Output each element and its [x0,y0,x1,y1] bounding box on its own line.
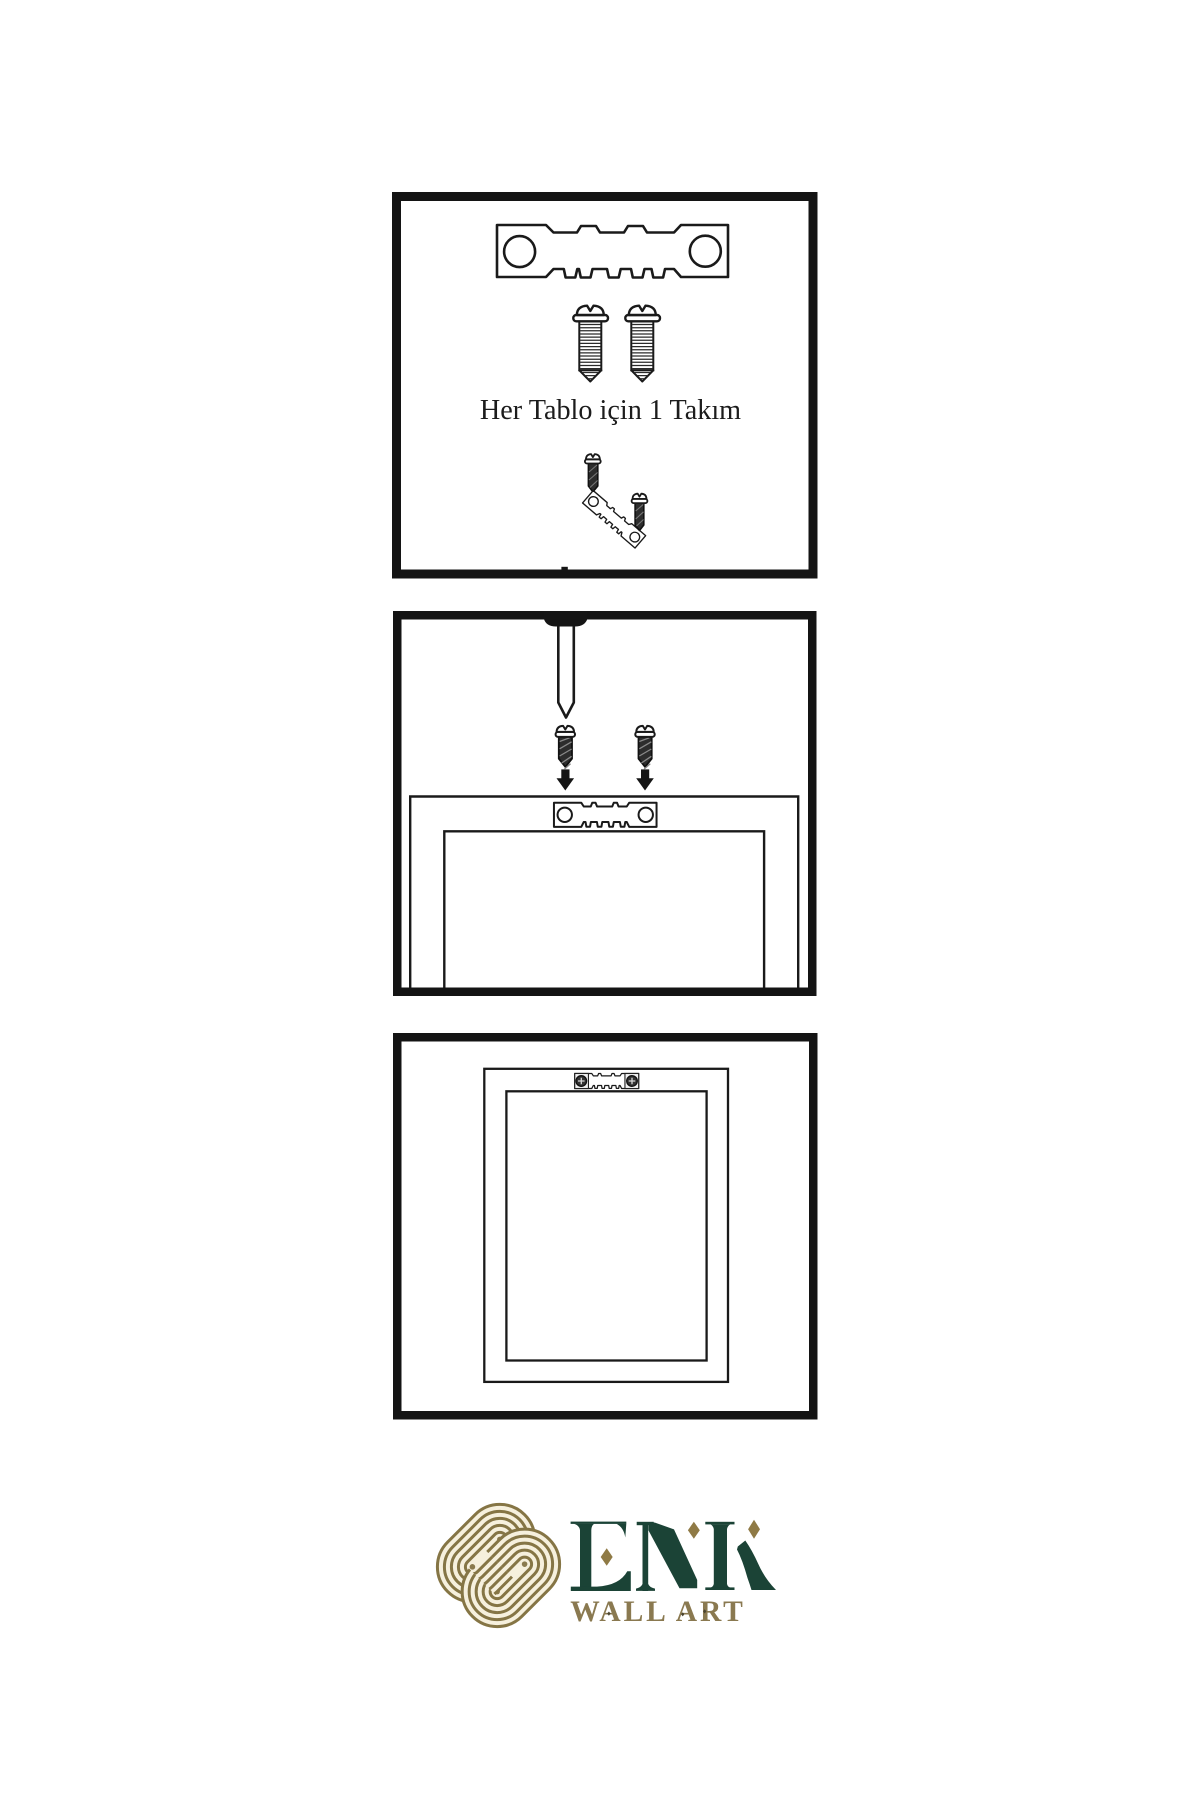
svg-text:WALL ART: WALL ART [570,1596,745,1628]
svg-text:Her Tablo için 1 Takım: Her Tablo için 1 Takım [480,395,741,426]
